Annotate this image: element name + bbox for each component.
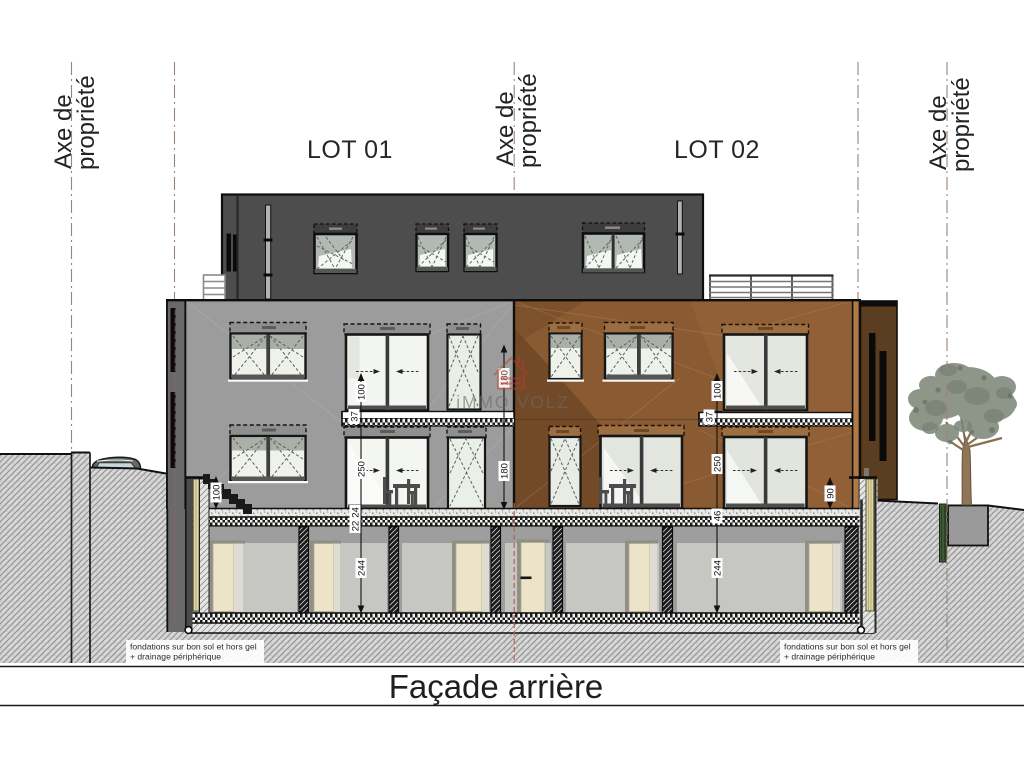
- svg-text:+ drainage périphérique: + drainage périphérique: [130, 652, 221, 662]
- svg-text:244: 244: [712, 560, 723, 576]
- svg-text:fondations sur bon sol et hors: fondations sur bon sol et hors gel: [784, 642, 911, 652]
- svg-text:100: 100: [211, 485, 222, 501]
- svg-text:46: 46: [712, 511, 723, 522]
- svg-text:100: 100: [712, 383, 723, 399]
- svg-text:244: 244: [356, 560, 367, 576]
- svg-text:propriété: propriété: [948, 77, 975, 172]
- svg-text:90: 90: [825, 488, 836, 499]
- svg-text:37: 37: [349, 411, 360, 422]
- svg-text:propriété: propriété: [515, 73, 542, 168]
- svg-text:250: 250: [712, 456, 723, 472]
- svg-text:fondations sur bon sol et hors: fondations sur bon sol et hors gel: [130, 642, 257, 652]
- svg-text:iMMO VOLZ: iMMO VOLZ: [456, 392, 569, 412]
- svg-text:+ drainage périphérique: + drainage périphérique: [784, 652, 875, 662]
- svg-text:LOT 02: LOT 02: [674, 136, 760, 164]
- svg-text:Façade arrière: Façade arrière: [389, 668, 604, 705]
- svg-text:250: 250: [356, 461, 367, 477]
- svg-text:100: 100: [356, 384, 367, 400]
- svg-text:propriété: propriété: [73, 75, 100, 170]
- svg-text:180: 180: [499, 463, 510, 479]
- svg-text:24: 24: [350, 507, 361, 518]
- svg-text:22: 22: [350, 521, 361, 532]
- svg-text:LOT 01: LOT 01: [307, 136, 393, 164]
- svg-text:37: 37: [704, 412, 715, 423]
